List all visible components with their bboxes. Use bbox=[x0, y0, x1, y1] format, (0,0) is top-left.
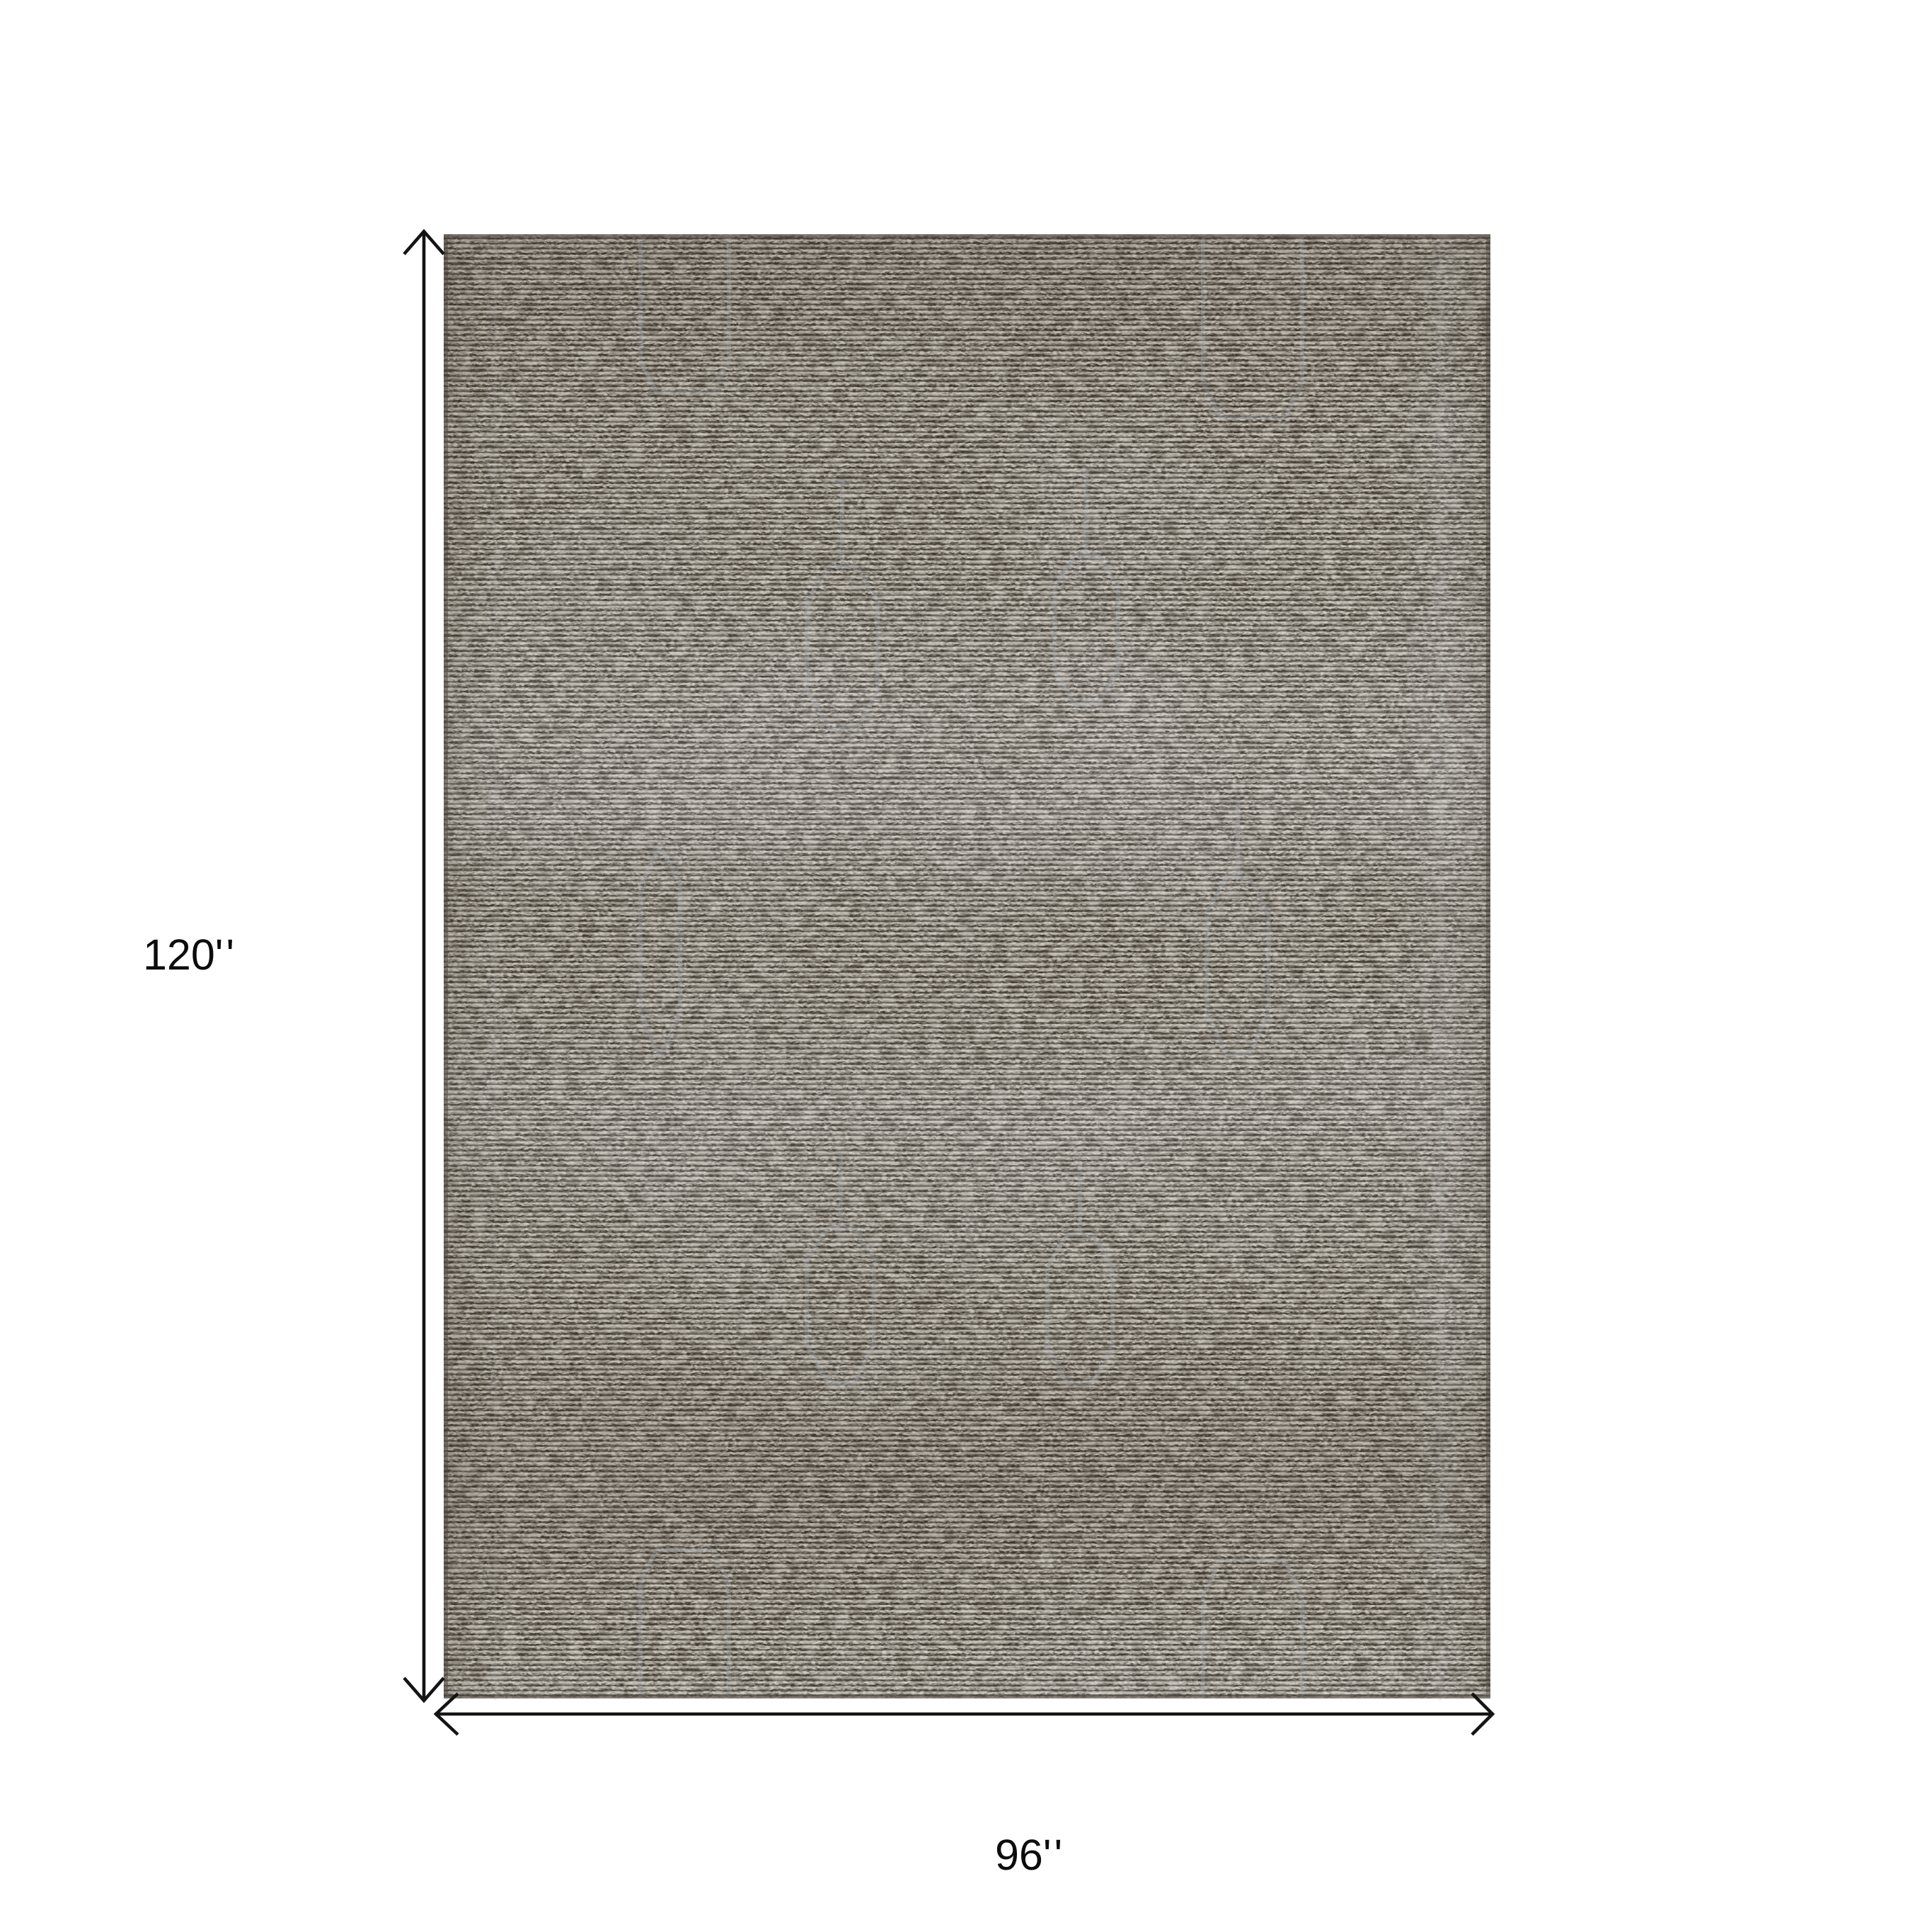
svg-text:120'': 120'' bbox=[143, 931, 234, 979]
